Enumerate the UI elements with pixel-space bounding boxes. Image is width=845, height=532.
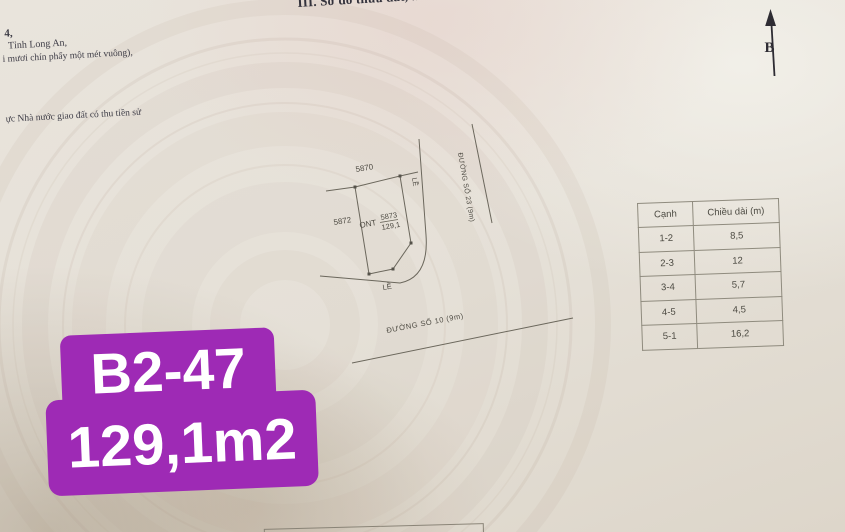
north-arrow: B [765, 9, 777, 76]
north-arrow-head [765, 9, 776, 26]
length-cell: 5,7 [695, 272, 782, 299]
parcel-area-label: 129,1 [381, 220, 401, 232]
legal-text-line: 4, [4, 27, 13, 39]
curb-label-bottom: LỀ [382, 281, 393, 292]
boundary-extension-west [326, 187, 355, 191]
length-cell: 4,5 [696, 296, 783, 323]
edge-cell: 3-4 [640, 275, 696, 301]
lot-info-sticker: B2-47 129,1m2 [43, 324, 322, 507]
table-row: 5-1 16,2 [642, 320, 784, 349]
length-cell: 8,5 [693, 223, 780, 250]
land-certificate-photo: 5870 5872 ONT 5873 129,1 LỀ LỀ ĐƯỜNG SỐ … [0, 0, 845, 532]
north-label: B [765, 40, 775, 56]
edge-cell: 4-5 [641, 299, 697, 325]
edge-cell: 1-2 [638, 226, 694, 252]
lot-area-text: 129,1m2 [45, 390, 319, 497]
column-header-length: Chiều dài (m) [692, 199, 779, 226]
length-cell: 12 [694, 247, 781, 274]
column-header-edge: Cạnh [638, 202, 694, 228]
edge-cell: 2-3 [639, 250, 695, 276]
neighbor-parcel-north-label: 5870 [355, 162, 375, 174]
length-cell: 16,2 [697, 320, 784, 347]
edge-length-table: Cạnh Chiều dài (m) 1-2 8,5 2-3 12 3-4 5,… [637, 198, 784, 350]
edge-cell: 5-1 [642, 323, 698, 349]
